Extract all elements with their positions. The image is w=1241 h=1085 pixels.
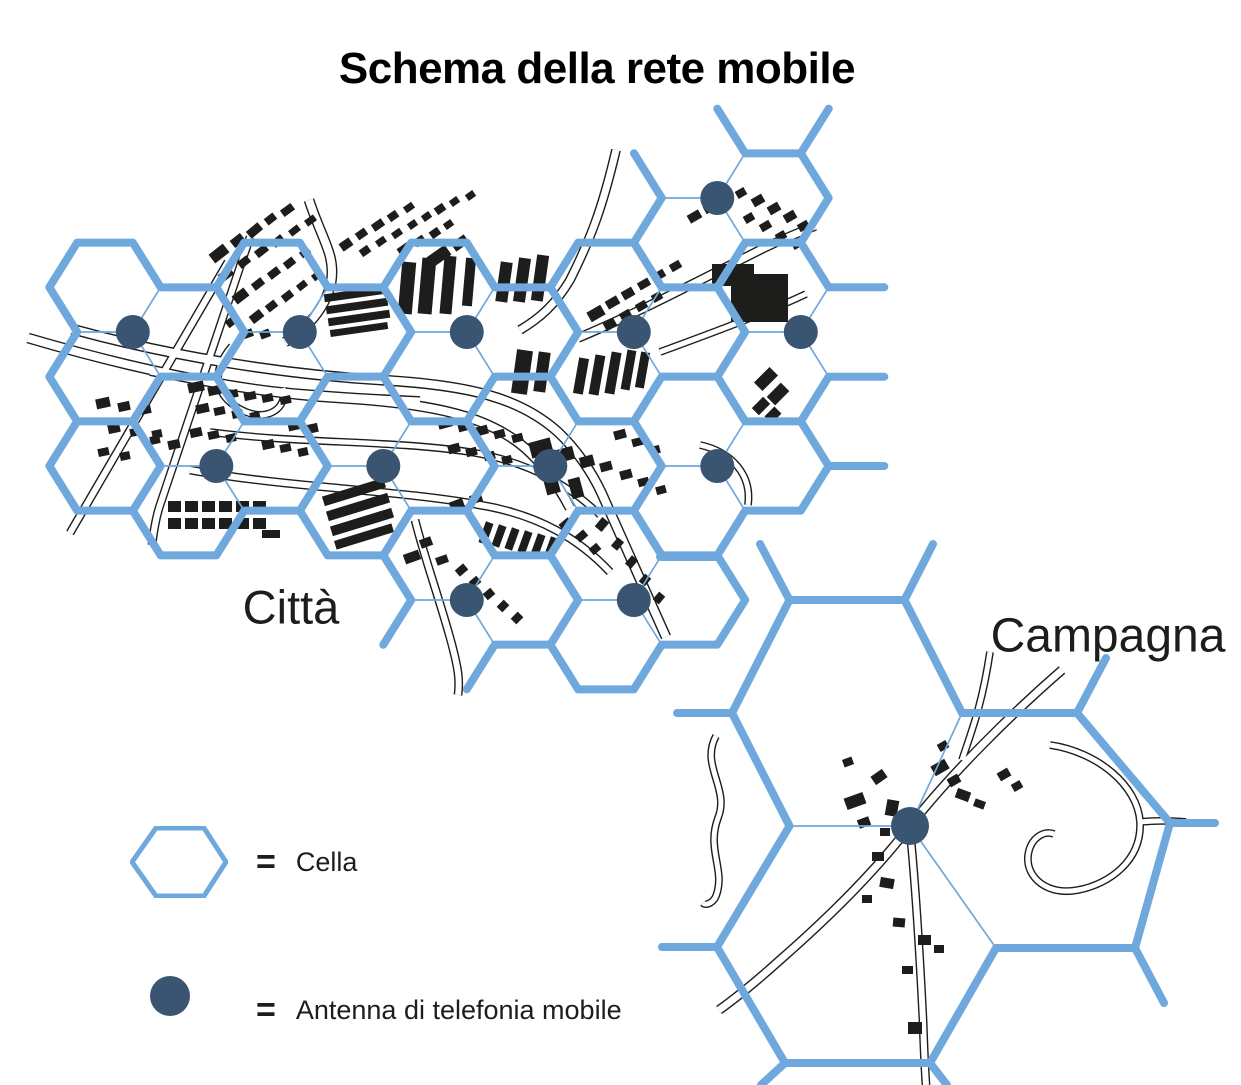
page-title: Schema della rete mobile: [0, 44, 1194, 94]
building: [185, 501, 198, 512]
antenna-dot: [283, 315, 317, 349]
building: [568, 477, 585, 499]
legend-antenna-row: = Antenna di telefonia mobile: [130, 974, 622, 1046]
building: [599, 461, 613, 473]
building: [455, 563, 469, 576]
building: [202, 501, 215, 512]
building: [595, 517, 610, 532]
building: [842, 757, 854, 768]
building: [752, 397, 770, 415]
building: [879, 877, 895, 889]
building: [253, 518, 266, 529]
building: [586, 305, 605, 323]
building: [189, 427, 203, 438]
building: [759, 220, 773, 232]
building: [754, 367, 778, 391]
building: [403, 202, 415, 213]
building: [202, 518, 215, 529]
building: [751, 194, 766, 208]
antenna-dot: [784, 315, 818, 349]
building: [767, 383, 790, 406]
building: [613, 429, 627, 441]
building: [117, 401, 131, 412]
building: [902, 966, 913, 974]
building: [391, 228, 403, 239]
antenna-dot: [366, 449, 400, 483]
building: [513, 257, 531, 302]
building: [531, 254, 549, 301]
building: [731, 274, 788, 322]
building: [872, 852, 884, 861]
building: [619, 469, 633, 481]
building: [251, 277, 265, 291]
road: [703, 736, 721, 904]
building: [655, 485, 667, 495]
building: [462, 258, 476, 307]
building: [605, 295, 621, 309]
building: [398, 261, 416, 314]
antenna-dot: [617, 315, 651, 349]
building: [297, 447, 308, 457]
building: [1011, 780, 1024, 792]
building: [418, 257, 437, 314]
antenna-dot: [450, 315, 484, 349]
building: [870, 769, 887, 785]
building: [918, 935, 931, 945]
building: [621, 287, 636, 301]
road: [719, 670, 1062, 1010]
building: [465, 190, 476, 201]
building: [533, 351, 550, 392]
building: [844, 792, 867, 810]
building: [495, 261, 512, 302]
building: [511, 349, 533, 395]
building: [279, 443, 291, 453]
antenna-dot-campagna: [891, 807, 929, 845]
building: [997, 768, 1012, 782]
building: [265, 299, 279, 312]
building: [893, 917, 906, 927]
building: [429, 227, 442, 239]
building: [955, 788, 972, 802]
antenna-dot: [116, 315, 150, 349]
building: [857, 816, 871, 829]
building: [296, 280, 308, 292]
building: [443, 219, 454, 230]
equals-sign: =: [256, 843, 276, 882]
building: [207, 430, 219, 440]
antenna-dot: [700, 449, 734, 483]
building: [421, 211, 432, 222]
building: [213, 406, 225, 416]
antenna-dot: [700, 181, 734, 215]
building: [185, 518, 198, 529]
diagram-stage: Schema della rete mobile Città Campagna …: [0, 0, 1241, 1085]
building: [267, 266, 281, 280]
building: [246, 222, 263, 239]
building: [908, 1022, 922, 1034]
equals-sign: =: [256, 991, 276, 1030]
building: [371, 218, 385, 231]
building: [403, 550, 421, 565]
building: [283, 256, 297, 269]
building: [635, 351, 650, 388]
building: [973, 798, 986, 809]
building: [219, 501, 232, 512]
building: [589, 354, 606, 395]
building: [168, 501, 181, 512]
building: [259, 329, 271, 340]
building: [511, 612, 524, 625]
building: [281, 289, 295, 302]
building: [862, 895, 872, 903]
legend-antenna-label: Antenna di telefonia mobile: [296, 995, 622, 1026]
building: [880, 828, 890, 836]
building: [280, 203, 295, 217]
building: [387, 210, 400, 222]
antenna-dot: [617, 583, 651, 617]
building: [151, 429, 162, 439]
building: [491, 524, 506, 547]
building: [95, 397, 111, 410]
building: [573, 357, 589, 394]
building: [262, 530, 280, 538]
legend-cell-row: = Cella: [130, 826, 357, 898]
building: [504, 527, 519, 550]
building: [439, 256, 456, 315]
building: [359, 245, 372, 257]
building: [249, 309, 265, 324]
building: [735, 187, 748, 199]
antenna-dot: [533, 449, 567, 483]
building: [264, 212, 278, 225]
building: [449, 196, 460, 207]
building: [497, 600, 510, 613]
city-label: Città: [243, 580, 340, 635]
building: [934, 945, 944, 953]
building: [97, 447, 109, 457]
building: [687, 209, 703, 223]
antenna-dot: [450, 583, 484, 617]
building: [168, 518, 181, 529]
diagram-canvas: [0, 0, 1241, 1085]
building: [355, 228, 369, 241]
antenna-dot: [199, 449, 233, 483]
country-label: Campagna: [991, 609, 1226, 664]
cell-hexagon-icon: [130, 826, 228, 898]
building: [339, 237, 354, 251]
building: [435, 554, 449, 566]
building: [375, 236, 387, 247]
building: [407, 219, 418, 230]
antenna-circle-icon: [130, 974, 228, 1046]
building: [783, 210, 798, 224]
building: [767, 202, 782, 216]
building: [288, 224, 301, 236]
building: [517, 530, 532, 553]
building: [209, 244, 230, 264]
building: [743, 212, 756, 224]
building: [434, 203, 447, 215]
building: [604, 351, 621, 394]
legend-cell-label: Cella: [296, 847, 358, 878]
building: [483, 588, 496, 601]
building: [621, 350, 637, 391]
building: [637, 278, 651, 291]
building: [669, 260, 683, 272]
